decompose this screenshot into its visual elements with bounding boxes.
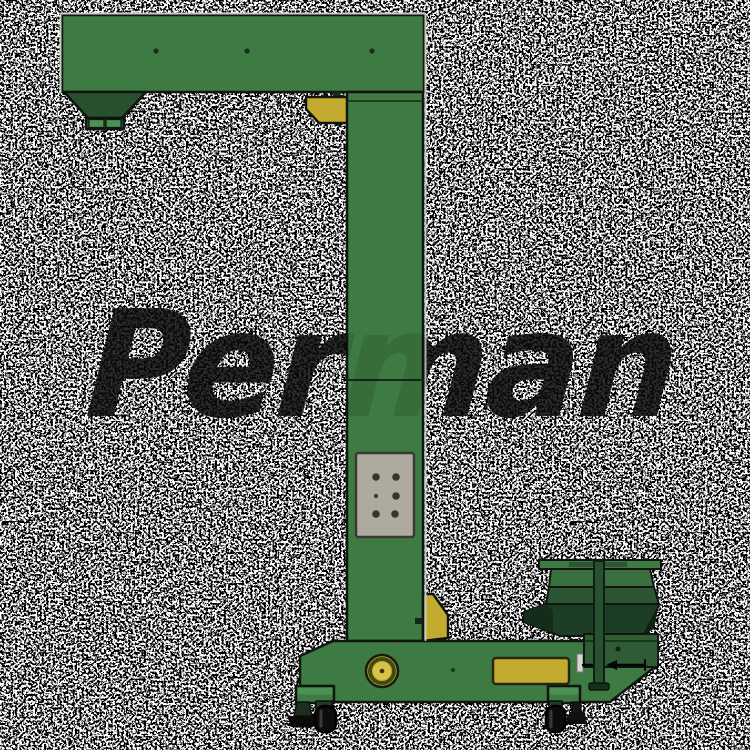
top-boom [62,15,424,92]
column-pin [415,618,422,624]
rod-foot [589,683,609,690]
caster-wheel-left [315,706,336,732]
boom-rivet [369,48,374,53]
boom-rivet [244,48,249,53]
hopper-outlet-cell [89,120,104,128]
feed-hopper [64,92,146,118]
watermark-text-overlay: Perman [83,291,681,439]
right-step-stripe [550,688,579,695]
left-step-stripe [298,688,333,695]
leveling-foot-right-stem [572,702,581,713]
feeder-support-rod [594,561,604,686]
leveling-foot-left-base [287,723,317,728]
discharge-cover [306,97,350,123]
panel-hole [392,492,400,500]
panel-hole [372,473,380,481]
hopper-outlet-cell [106,120,121,128]
boom-rivet [153,48,158,53]
panel-hole [374,494,378,498]
product-image: Perman [0,0,750,750]
base-gusset [423,594,448,641]
base-label-plate [493,658,569,684]
feeder-box-rivet [616,647,621,652]
panel-hole [391,510,399,518]
base-rivet [451,668,455,672]
drive-wheel-axle [380,669,385,674]
panel-hole [392,473,400,481]
leveling-foot-right-cone [565,712,588,720]
caster-wheel-right [546,706,565,732]
panel-hole [372,510,380,518]
electrical-panel [356,453,414,537]
gray-bracket [577,654,583,672]
drive-wheel [366,655,398,687]
feet [287,701,588,732]
leveling-foot-right-pad [566,720,587,724]
leveling-foot-left-stem [294,702,312,716]
